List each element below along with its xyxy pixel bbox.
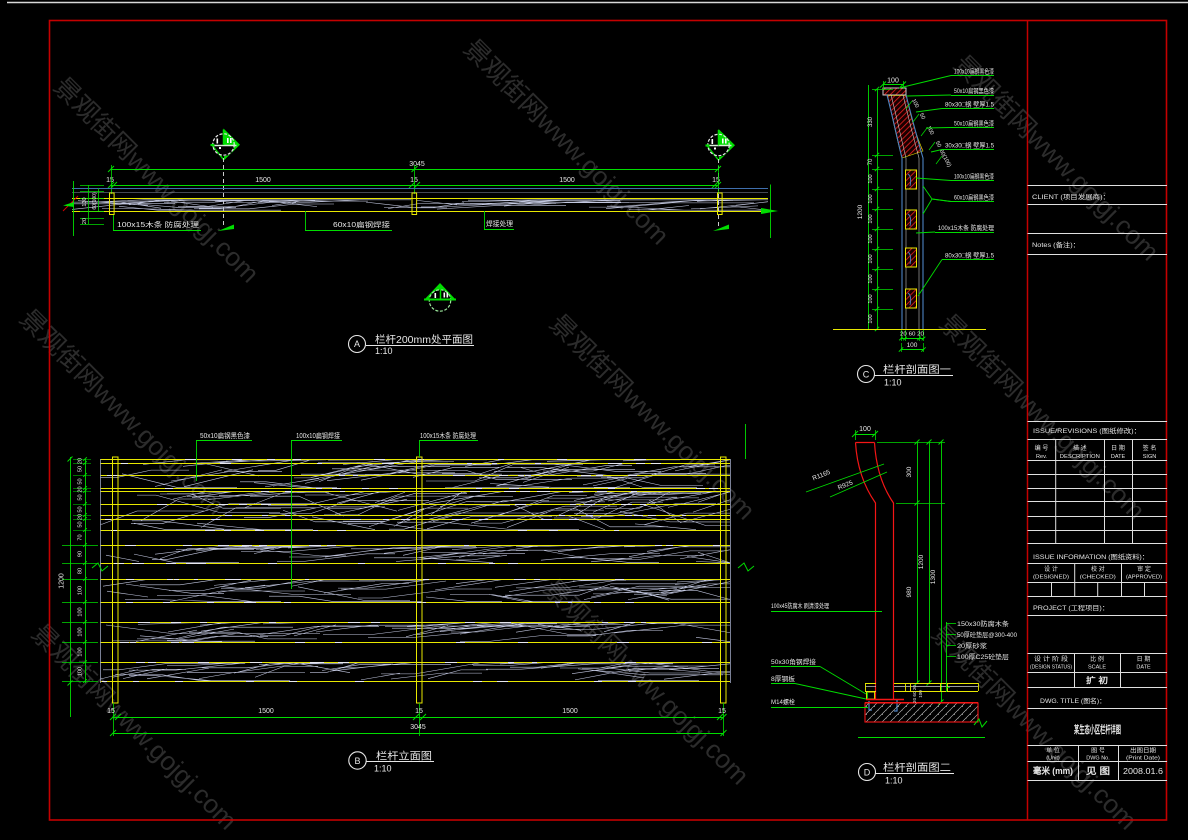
svg-text:50x10扁钢黑色漆: 50x10扁钢黑色漆 [200,431,250,440]
svg-text:15: 15 [106,177,114,184]
svg-text:50: 50 [78,466,84,472]
svg-text:15: 15 [107,708,115,715]
svg-text:审 定: 审 定 [1137,565,1151,573]
svg-text:70: 70 [868,158,874,165]
svg-text:100: 100 [859,426,871,433]
svg-text:DESCRIPTION: DESCRIPTION [1060,454,1100,460]
svg-text:SCALE: SCALE [1088,665,1106,671]
svg-text:焊接处理: 焊接处理 [486,219,513,228]
svg-text:130: 130 [82,197,88,206]
svg-text:描 述: 描 述 [1073,444,1087,452]
svg-text:比 例: 比 例 [1090,655,1104,663]
svg-text:330: 330 [868,116,874,127]
svg-text:980: 980 [906,586,913,597]
svg-text:A: A [354,339,360,349]
svg-text:1500: 1500 [258,708,274,715]
svg-text:30x30□钢 壁厚1.5: 30x30□钢 壁厚1.5 [945,141,994,150]
svg-text:1200: 1200 [918,554,925,569]
svg-text:DWG. TITLE (图名)：: DWG. TITLE (图名)： [1040,696,1106,705]
svg-text:100x10扁钢黑色漆: 100x10扁钢黑色漆 [954,67,994,76]
svg-text:(CHECKED): (CHECKED) [1080,575,1116,581]
svg-text:20: 20 [82,218,88,224]
svg-text:1:10: 1:10 [375,346,393,356]
svg-text:15: 15 [410,177,418,184]
svg-text:栏杆立面图: 栏杆立面图 [376,750,432,763]
svg-text:100x15木条 防腐处理: 100x15木条 防腐处理 [938,223,994,232]
svg-text:毫米 (mm): 毫米 (mm) [1033,765,1073,776]
svg-text:100: 100 [868,294,874,303]
svg-text:100: 100 [78,607,84,616]
svg-text:100厚C25砼垫层: 100厚C25砼垫层 [957,652,1010,661]
svg-text:20: 20 [78,458,84,464]
svg-text:ISSUE INFORMATION (图纸资料)：: ISSUE INFORMATION (图纸资料)： [1033,552,1149,561]
svg-text:100: 100 [868,174,874,183]
svg-text:M14螺栓: M14螺栓 [771,697,795,706]
svg-text:100: 100 [918,690,923,698]
svg-text:60x10扁钢黑色漆: 60x10扁钢黑色漆 [954,193,994,202]
svg-text:B: B [354,756,360,766]
svg-text:CLIENT (项目发展商)：: CLIENT (项目发展商)： [1032,192,1110,201]
svg-text:Rev.: Rev. [1036,454,1047,460]
svg-text:50x10扁钢黑色漆: 50x10扁钢黑色漆 [954,86,994,95]
svg-text:(Unit): (Unit) [1046,756,1060,762]
svg-text:SIGN: SIGN [1143,454,1156,460]
svg-text:50厚砼垫层@300-400: 50厚砼垫层@300-400 [957,630,1017,639]
svg-text:1300: 1300 [930,569,937,584]
svg-text:90: 90 [78,551,84,557]
svg-text:设 计: 设 计 [1044,565,1058,573]
svg-text:20 60 20: 20 60 20 [912,685,917,703]
svg-text:D: D [864,768,871,778]
svg-text:100x10扁钢焊接: 100x10扁钢焊接 [296,431,340,440]
svg-text:1200: 1200 [857,204,864,219]
svg-text:100: 100 [868,214,874,223]
svg-text:1:10: 1:10 [374,764,392,774]
svg-text:(DESIGN STATUS): (DESIGN STATUS) [1030,665,1072,671]
svg-text:日 期: 日 期 [1111,444,1125,452]
svg-text:150x30防腐木条: 150x30防腐木条 [957,619,1010,628]
svg-text:50: 50 [78,478,84,484]
svg-text:签 名: 签 名 [1143,444,1157,452]
svg-text:80x30□钢 壁厚1.5: 80x30□钢 壁厚1.5 [945,100,994,109]
svg-text:(Print Date): (Print Date) [1126,756,1160,762]
svg-text:图 号: 图 号 [1091,748,1105,755]
svg-text:设 计 阶 段: 设 计 阶 段 [1034,655,1068,663]
svg-text:某生态小区栏杆详图: 某生态小区栏杆详图 [1074,723,1121,736]
svg-text:编 号: 编 号 [1035,444,1049,452]
svg-text:栏杆200mm处平面图: 栏杆200mm处平面图 [375,333,473,346]
svg-text:2008.01.6: 2008.01.6 [1123,766,1163,776]
svg-text:C: C [863,370,870,380]
svg-text:栏杆剖面图二: 栏杆剖面图二 [883,761,951,774]
svg-text:50x10扁钢黑色漆: 50x10扁钢黑色漆 [954,119,994,128]
svg-text:1500: 1500 [559,177,575,184]
svg-text:50x30角钢焊接: 50x30角钢焊接 [771,657,817,666]
svg-text:100x45防腐木 刷清漆处理: 100x45防腐木 刷清漆处理 [771,601,829,610]
svg-text:单 位: 单 位 [1046,747,1060,755]
svg-text:(APPROVED): (APPROVED) [1126,575,1162,581]
svg-text:15: 15 [415,708,423,715]
svg-text:扩 初: 扩 初 [1086,675,1108,685]
svg-text:100: 100 [887,78,899,85]
svg-text:100: 100 [868,194,874,203]
svg-text:栏杆剖面图一: 栏杆剖面图一 [883,363,951,376]
svg-text:100: 100 [78,627,84,636]
svg-text:100: 100 [868,274,874,283]
svg-text:1500: 1500 [255,177,271,184]
svg-text:(DESIGNED): (DESIGNED) [1033,575,1069,581]
svg-text:20厚砂浆: 20厚砂浆 [957,641,988,650]
svg-text:50: 50 [78,494,84,500]
svg-text:100: 100 [78,586,84,595]
svg-text:100x10扁钢黑色漆: 100x10扁钢黑色漆 [954,172,994,181]
svg-text:3045: 3045 [409,161,425,168]
svg-text:日 期: 日 期 [1137,655,1151,663]
svg-text:50: 50 [78,506,84,512]
svg-text:100: 100 [868,234,874,243]
svg-text:100x15木条 防腐处理: 100x15木条 防腐处理 [117,220,199,229]
svg-text:20: 20 [78,514,84,520]
svg-text:1500: 1500 [562,708,578,715]
svg-text:DATE: DATE [1136,665,1151,671]
svg-text:3045: 3045 [410,724,426,731]
svg-text:1:10: 1:10 [885,776,903,786]
svg-text:15: 15 [718,708,726,715]
svg-text:8厚钢板: 8厚钢板 [771,674,796,683]
svg-text:20: 20 [78,486,84,492]
svg-text:100: 100 [78,667,84,676]
svg-text:ISSUE/REVISIONS (图纸修改)：: ISSUE/REVISIONS (图纸修改)： [1033,426,1141,435]
svg-text:50: 50 [78,521,84,527]
svg-text:80x30□钢 壁厚1.5: 80x30□钢 壁厚1.5 [945,251,994,260]
svg-text:60(100): 60(100) [92,192,98,210]
svg-text:100: 100 [907,342,918,349]
svg-text:100: 100 [868,314,874,323]
svg-text:100: 100 [868,254,874,263]
svg-text:见 图: 见 图 [1086,766,1110,776]
svg-text:1200: 1200 [59,573,66,589]
svg-text:1:10: 1:10 [884,378,902,388]
svg-text:PROJECT (工程项目)：: PROJECT (工程项目)： [1033,603,1109,612]
svg-text:校 对: 校 对 [1091,565,1105,573]
svg-text:70: 70 [78,534,84,540]
svg-text:20 60 20: 20 60 20 [900,332,924,338]
svg-text:100x15木条 防腐处理: 100x15木条 防腐处理 [420,431,476,440]
svg-text:Notes (备注)：: Notes (备注)： [1032,240,1080,249]
svg-text:出图日期: 出图日期 [1130,747,1156,755]
svg-text:DATE: DATE [1111,454,1126,460]
svg-text:300: 300 [906,466,913,477]
svg-text:80: 80 [78,568,84,574]
svg-text:60x10扁钢焊接: 60x10扁钢焊接 [333,220,390,229]
svg-text:DWG No.: DWG No. [1086,756,1110,762]
svg-text:100: 100 [78,647,84,656]
